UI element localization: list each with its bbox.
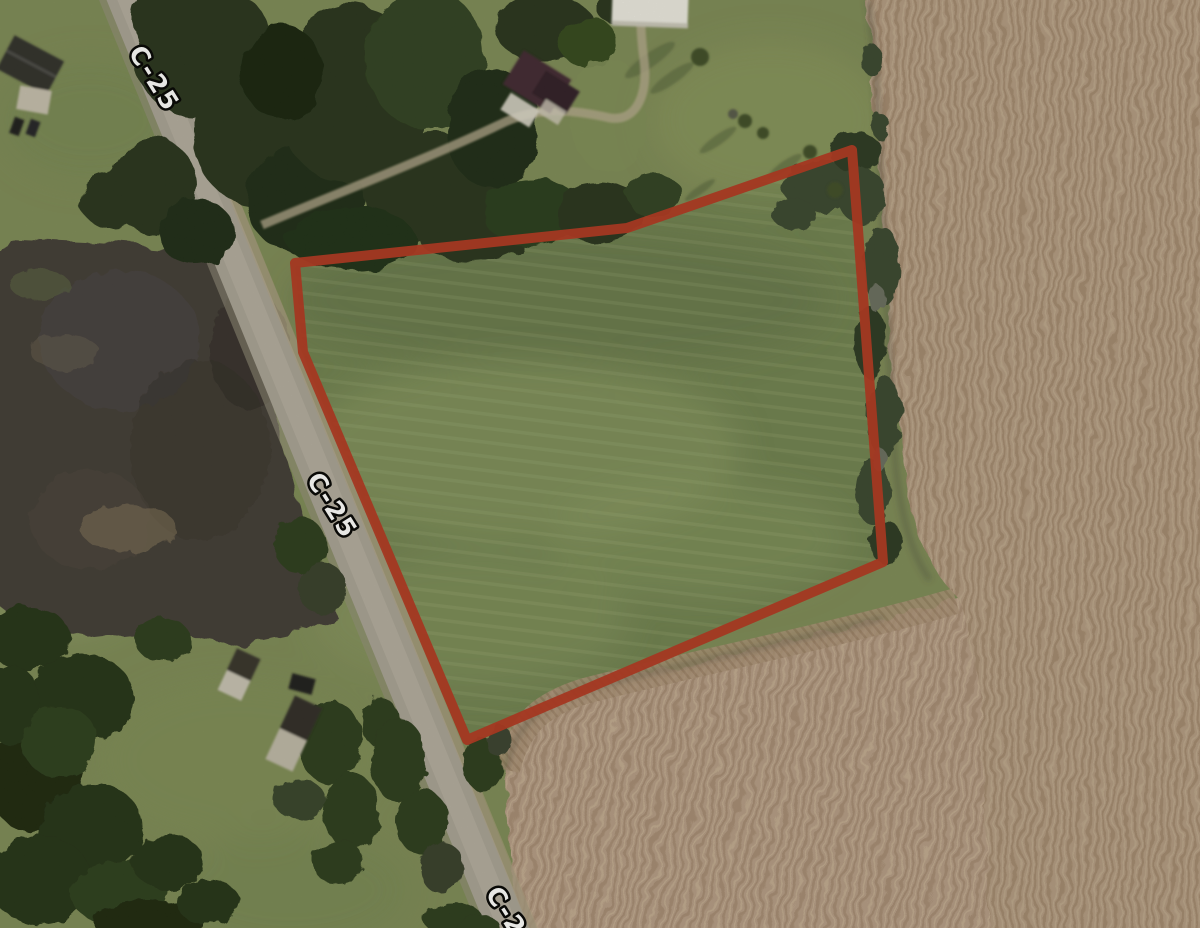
aerial-map: C-25 C-25 C-25 bbox=[0, 0, 1200, 928]
grain-overlay bbox=[0, 0, 1200, 928]
aerial-map-screenshot: C-25 C-25 C-25 bbox=[0, 0, 1200, 928]
